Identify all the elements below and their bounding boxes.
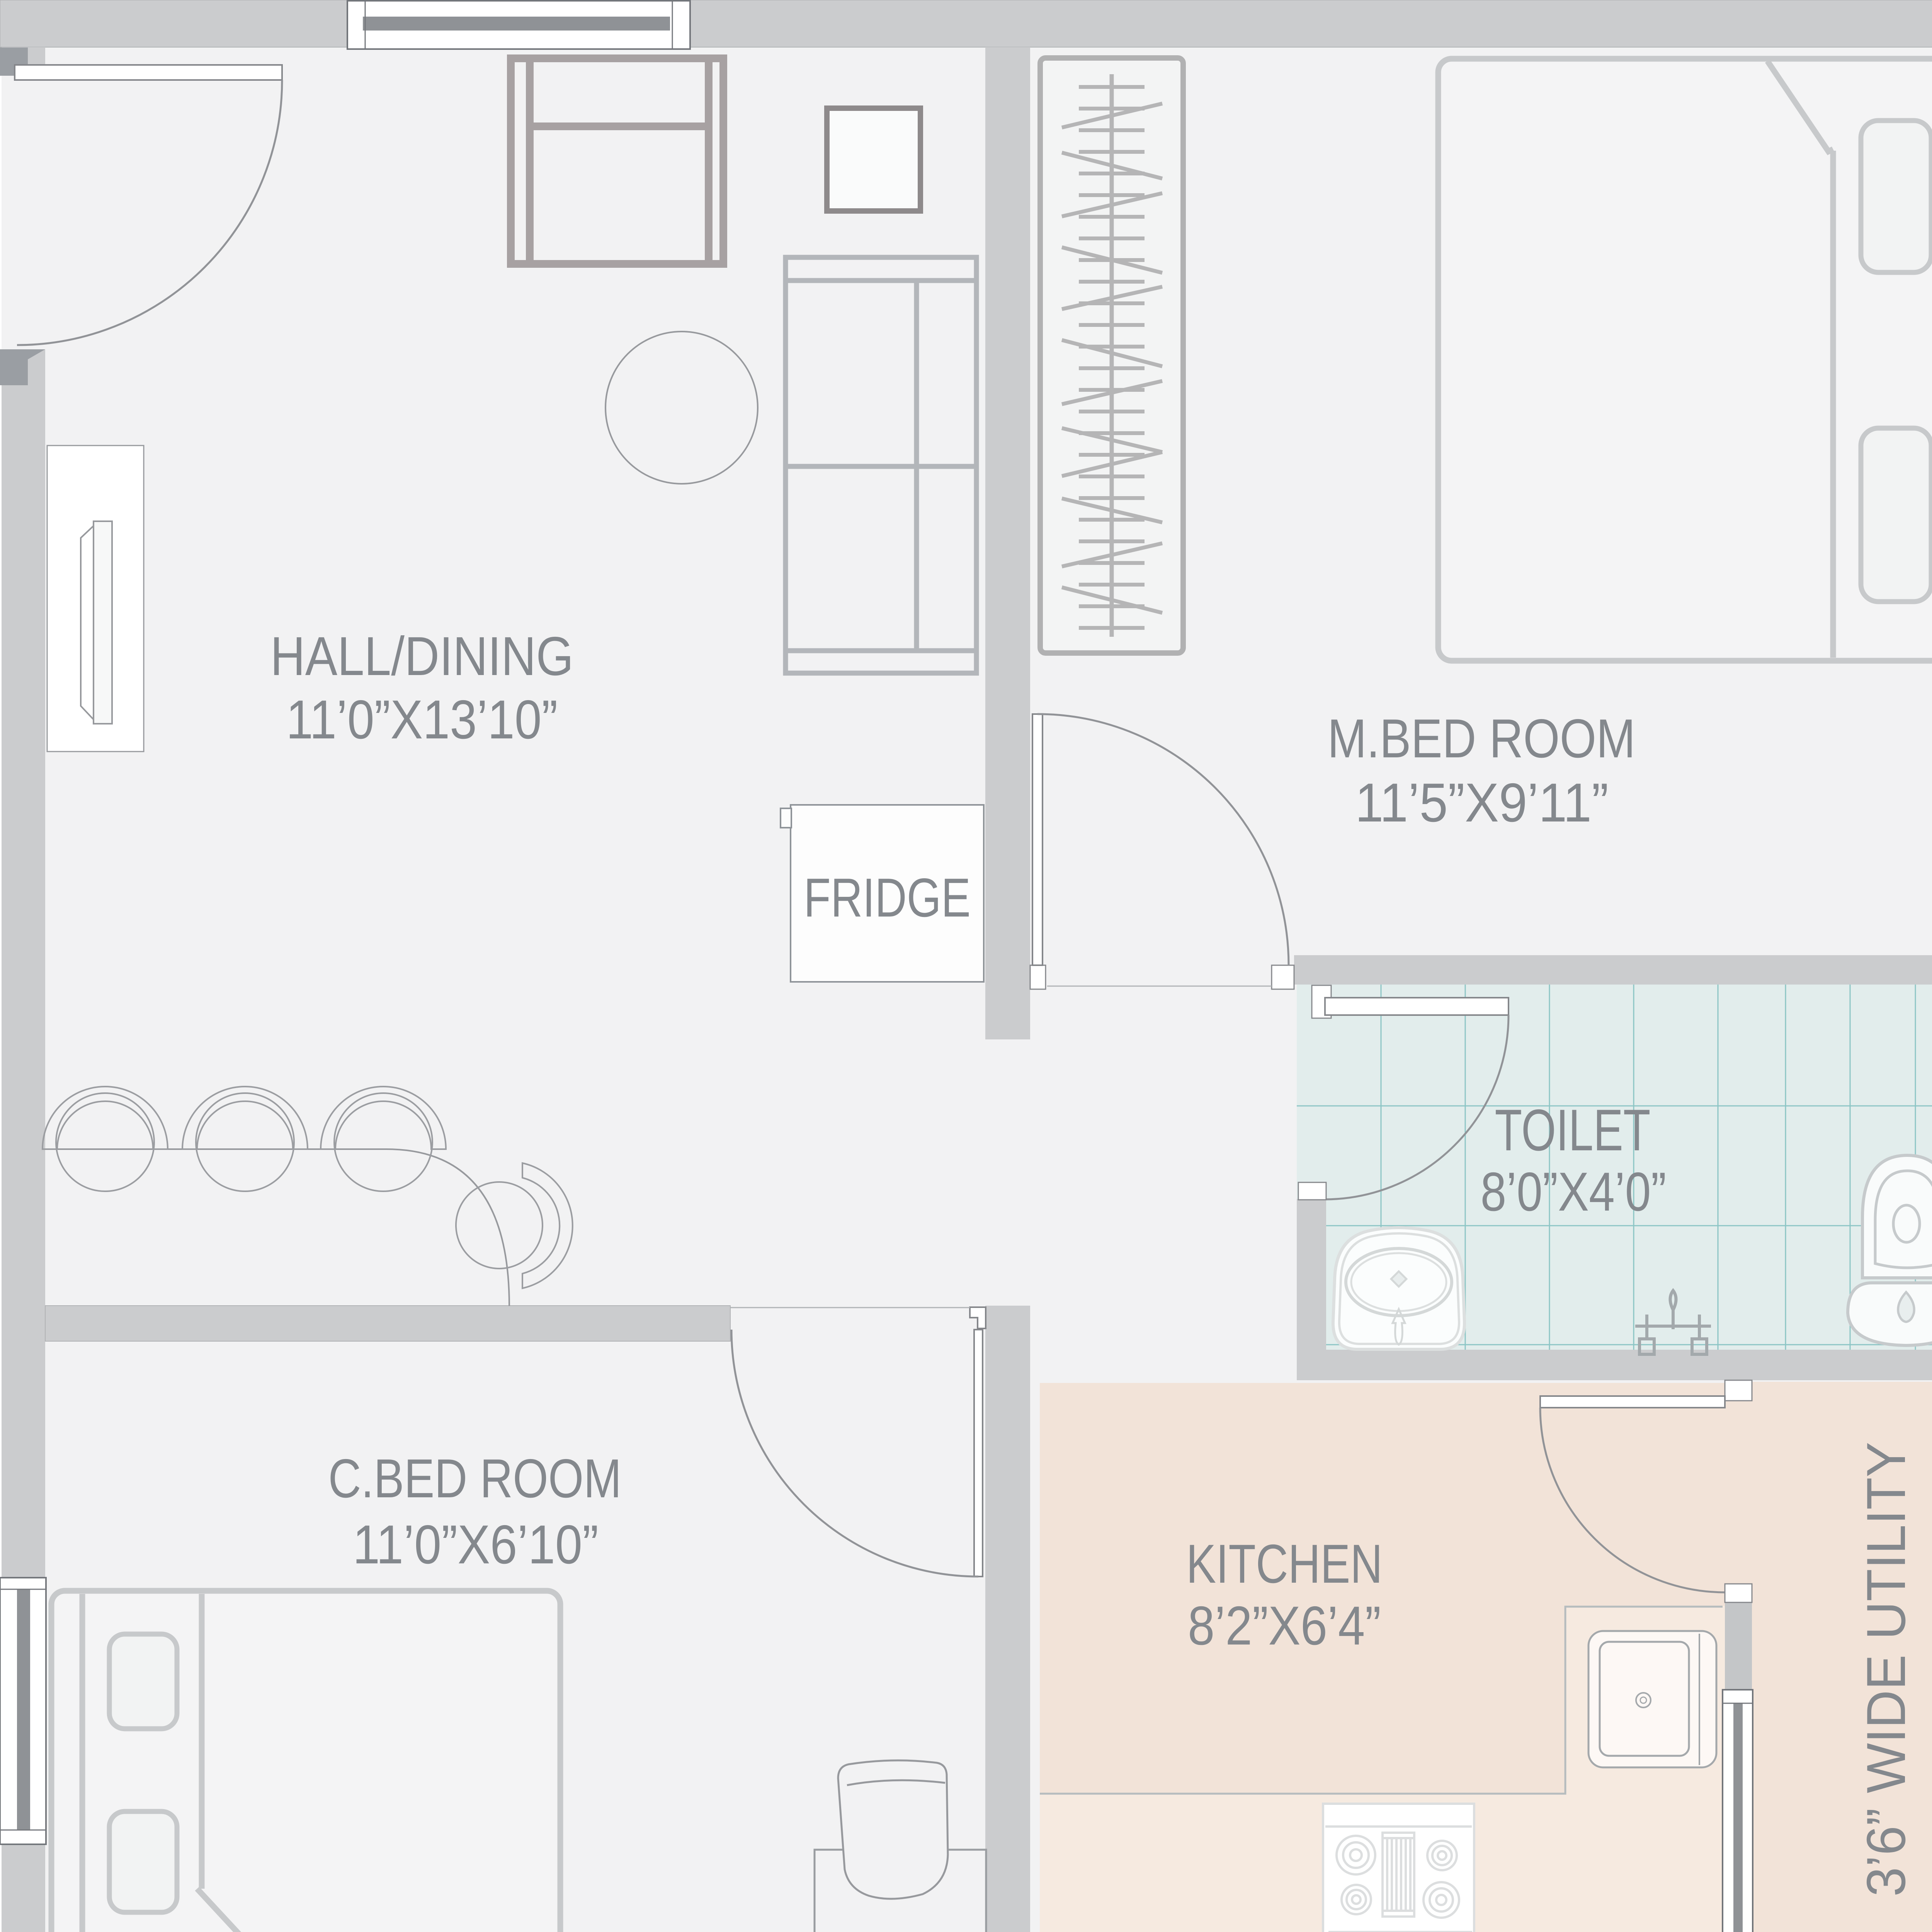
svg-text:8’2”X6’4”: 8’2”X6’4” [1188,1595,1381,1656]
svg-text:C.BED ROOM: C.BED ROOM [328,1448,622,1509]
svg-text:KITCHEN: KITCHEN [1186,1533,1383,1595]
svg-text:11’5”X9’11”: 11’5”X9’11” [1355,772,1609,833]
svg-text:8’0”X4’0”: 8’0”X4’0” [1481,1161,1667,1223]
svg-text:M.BED ROOM: M.BED ROOM [1328,708,1636,769]
svg-text:TOILET: TOILET [1495,1097,1651,1163]
svg-text:11’0”X6’10”: 11’0”X6’10” [353,1514,599,1575]
svg-text:HALL/DINING: HALL/DINING [270,626,574,687]
svg-text:3’6” WIDE UTILITY: 3’6” WIDE UTILITY [1855,1442,1917,1897]
svg-text:FRIDGE: FRIDGE [804,867,971,929]
svg-text:11’0”X13’10”: 11’0”X13’10” [286,689,558,750]
